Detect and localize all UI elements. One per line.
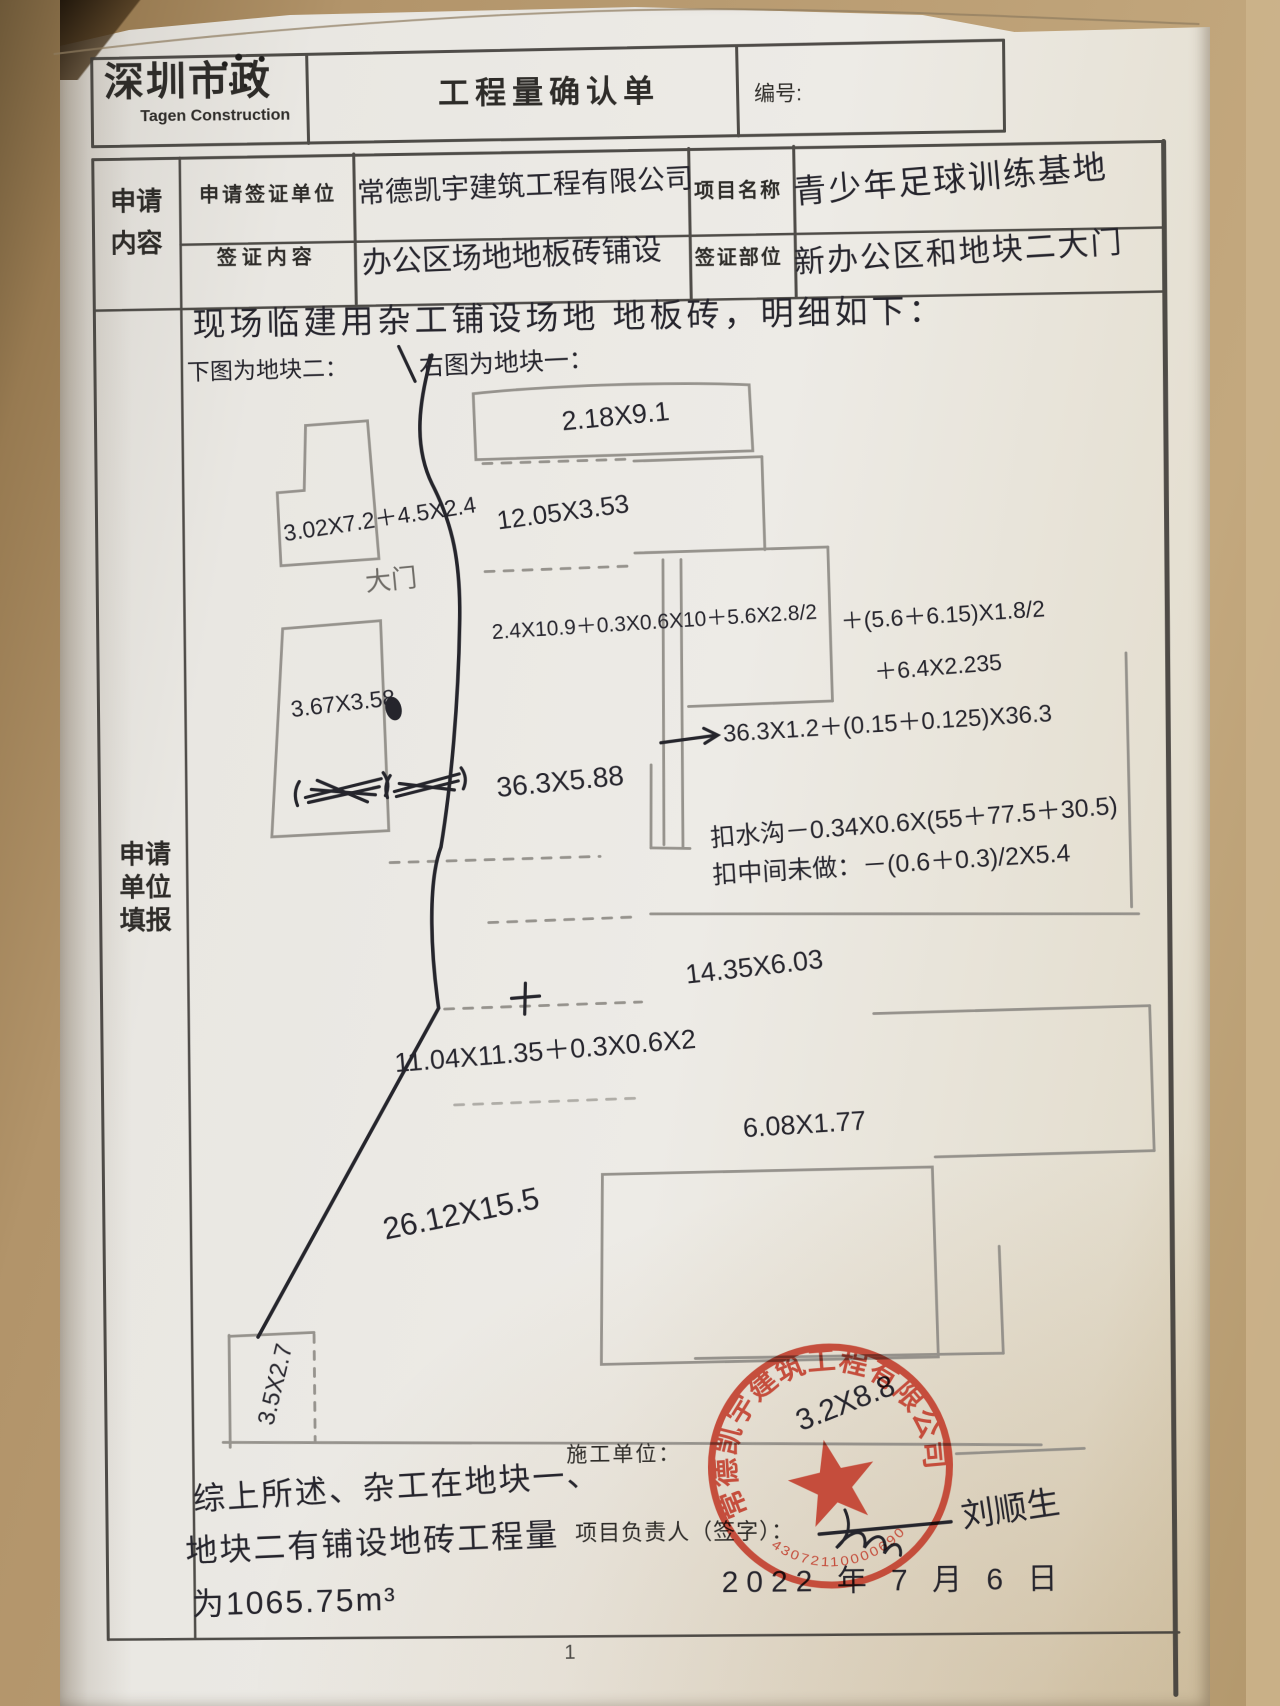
- scanned-form-photo: 深圳市政 Tagen Construction 工程量确认单 编号: 申请 内容…: [0, 0, 1280, 1706]
- svg-text:43072110000690: 43072110000690: [767, 1508, 913, 1583]
- seal-serial-number: 43072110000690: [767, 1508, 913, 1583]
- form-content: 深圳市政 Tagen Construction 工程量确认单 编号: 申请 内容…: [0, 0, 1280, 1706]
- company-seal: 常德凯宇建筑工程有限公司 43072110000690: [0, 0, 1280, 1706]
- seal-star-icon: [781, 1430, 884, 1530]
